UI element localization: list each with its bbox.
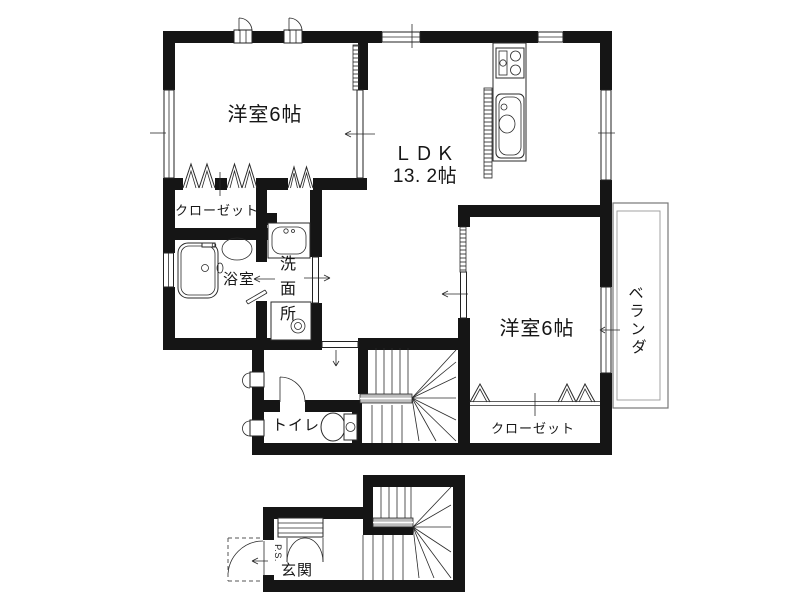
stair-winder-fan <box>412 350 456 441</box>
bathroom-fixtures <box>178 238 252 298</box>
label-bedroom2: 洋室6帖 <box>499 317 574 340</box>
vent-window-icon <box>234 18 252 43</box>
slide-arrow <box>333 350 339 366</box>
svg-text:面: 面 <box>280 281 296 298</box>
label-ldk-area: 13. 2帖 <box>393 165 457 187</box>
label-bathroom: 浴室 <box>223 271 255 288</box>
toilet-door-arc <box>280 377 305 402</box>
sliding-door-bedroom2 <box>461 272 467 318</box>
bath-counter-icon <box>222 238 252 260</box>
label-veranda: ベ ラ ン ダ <box>628 285 646 356</box>
stair-winder-fan <box>413 487 451 578</box>
floor-plan-page: 洋室6帖 ＬＤＫ 13. 2帖 クローゼット 浴室 洗 面 所 洋室6帖 ベ ラ… <box>0 0 800 600</box>
label-toilet: トイレ <box>272 417 320 434</box>
svg-text:所: 所 <box>280 305 296 323</box>
windows <box>164 18 612 436</box>
svg-text:ラ: ラ <box>629 303 644 320</box>
label-pipe-space: P.S. <box>273 544 283 562</box>
floor-plan-drawing: 洋室6帖 ＬＤＫ 13. 2帖 クローゼット 浴室 洗 面 所 洋室6帖 ベ ラ… <box>0 0 800 600</box>
shoe-cabinet-icon <box>278 518 323 537</box>
door-pocket-hatch <box>460 227 466 272</box>
slide-arrow <box>254 276 275 282</box>
kitchen-counter <box>484 43 526 178</box>
stove-icon <box>496 48 524 78</box>
svg-text:ン: ン <box>630 321 645 338</box>
sliding-door-hall <box>322 342 358 348</box>
vent-window-icon <box>284 18 302 43</box>
vent-icon <box>243 372 264 388</box>
sliding-door-washroom <box>313 257 319 303</box>
label-bedroom1: 洋室6帖 <box>227 103 302 126</box>
svg-text:洗: 洗 <box>280 255 296 273</box>
slide-arrow <box>252 558 268 564</box>
entrance-closet-doors <box>287 538 323 562</box>
toilet-fixture-icon <box>321 413 357 441</box>
label-ldk: ＬＤＫ <box>393 144 456 165</box>
exterior-walls <box>163 31 612 455</box>
stairs-2f <box>360 348 456 443</box>
label-closet-west: クローゼット <box>175 203 259 218</box>
bathtub-icon <box>178 243 218 298</box>
kitchen-partition-hatch <box>484 88 492 178</box>
dimension-ticks <box>150 24 615 196</box>
door-pocket-hatch <box>353 45 359 90</box>
bifold-doors <box>183 164 600 416</box>
svg-text:ベ: ベ <box>628 285 643 302</box>
label-closet-east: クローゼット <box>491 421 575 436</box>
label-entrance: 玄関 <box>281 562 313 579</box>
vanity-sink-icon <box>268 223 310 258</box>
kitchen-sink-icon <box>496 94 524 158</box>
label-washroom: 洗 面 所 <box>280 255 296 323</box>
vent-icon <box>243 420 264 436</box>
entrance-door <box>228 538 268 581</box>
svg-text:ダ: ダ <box>631 339 646 356</box>
